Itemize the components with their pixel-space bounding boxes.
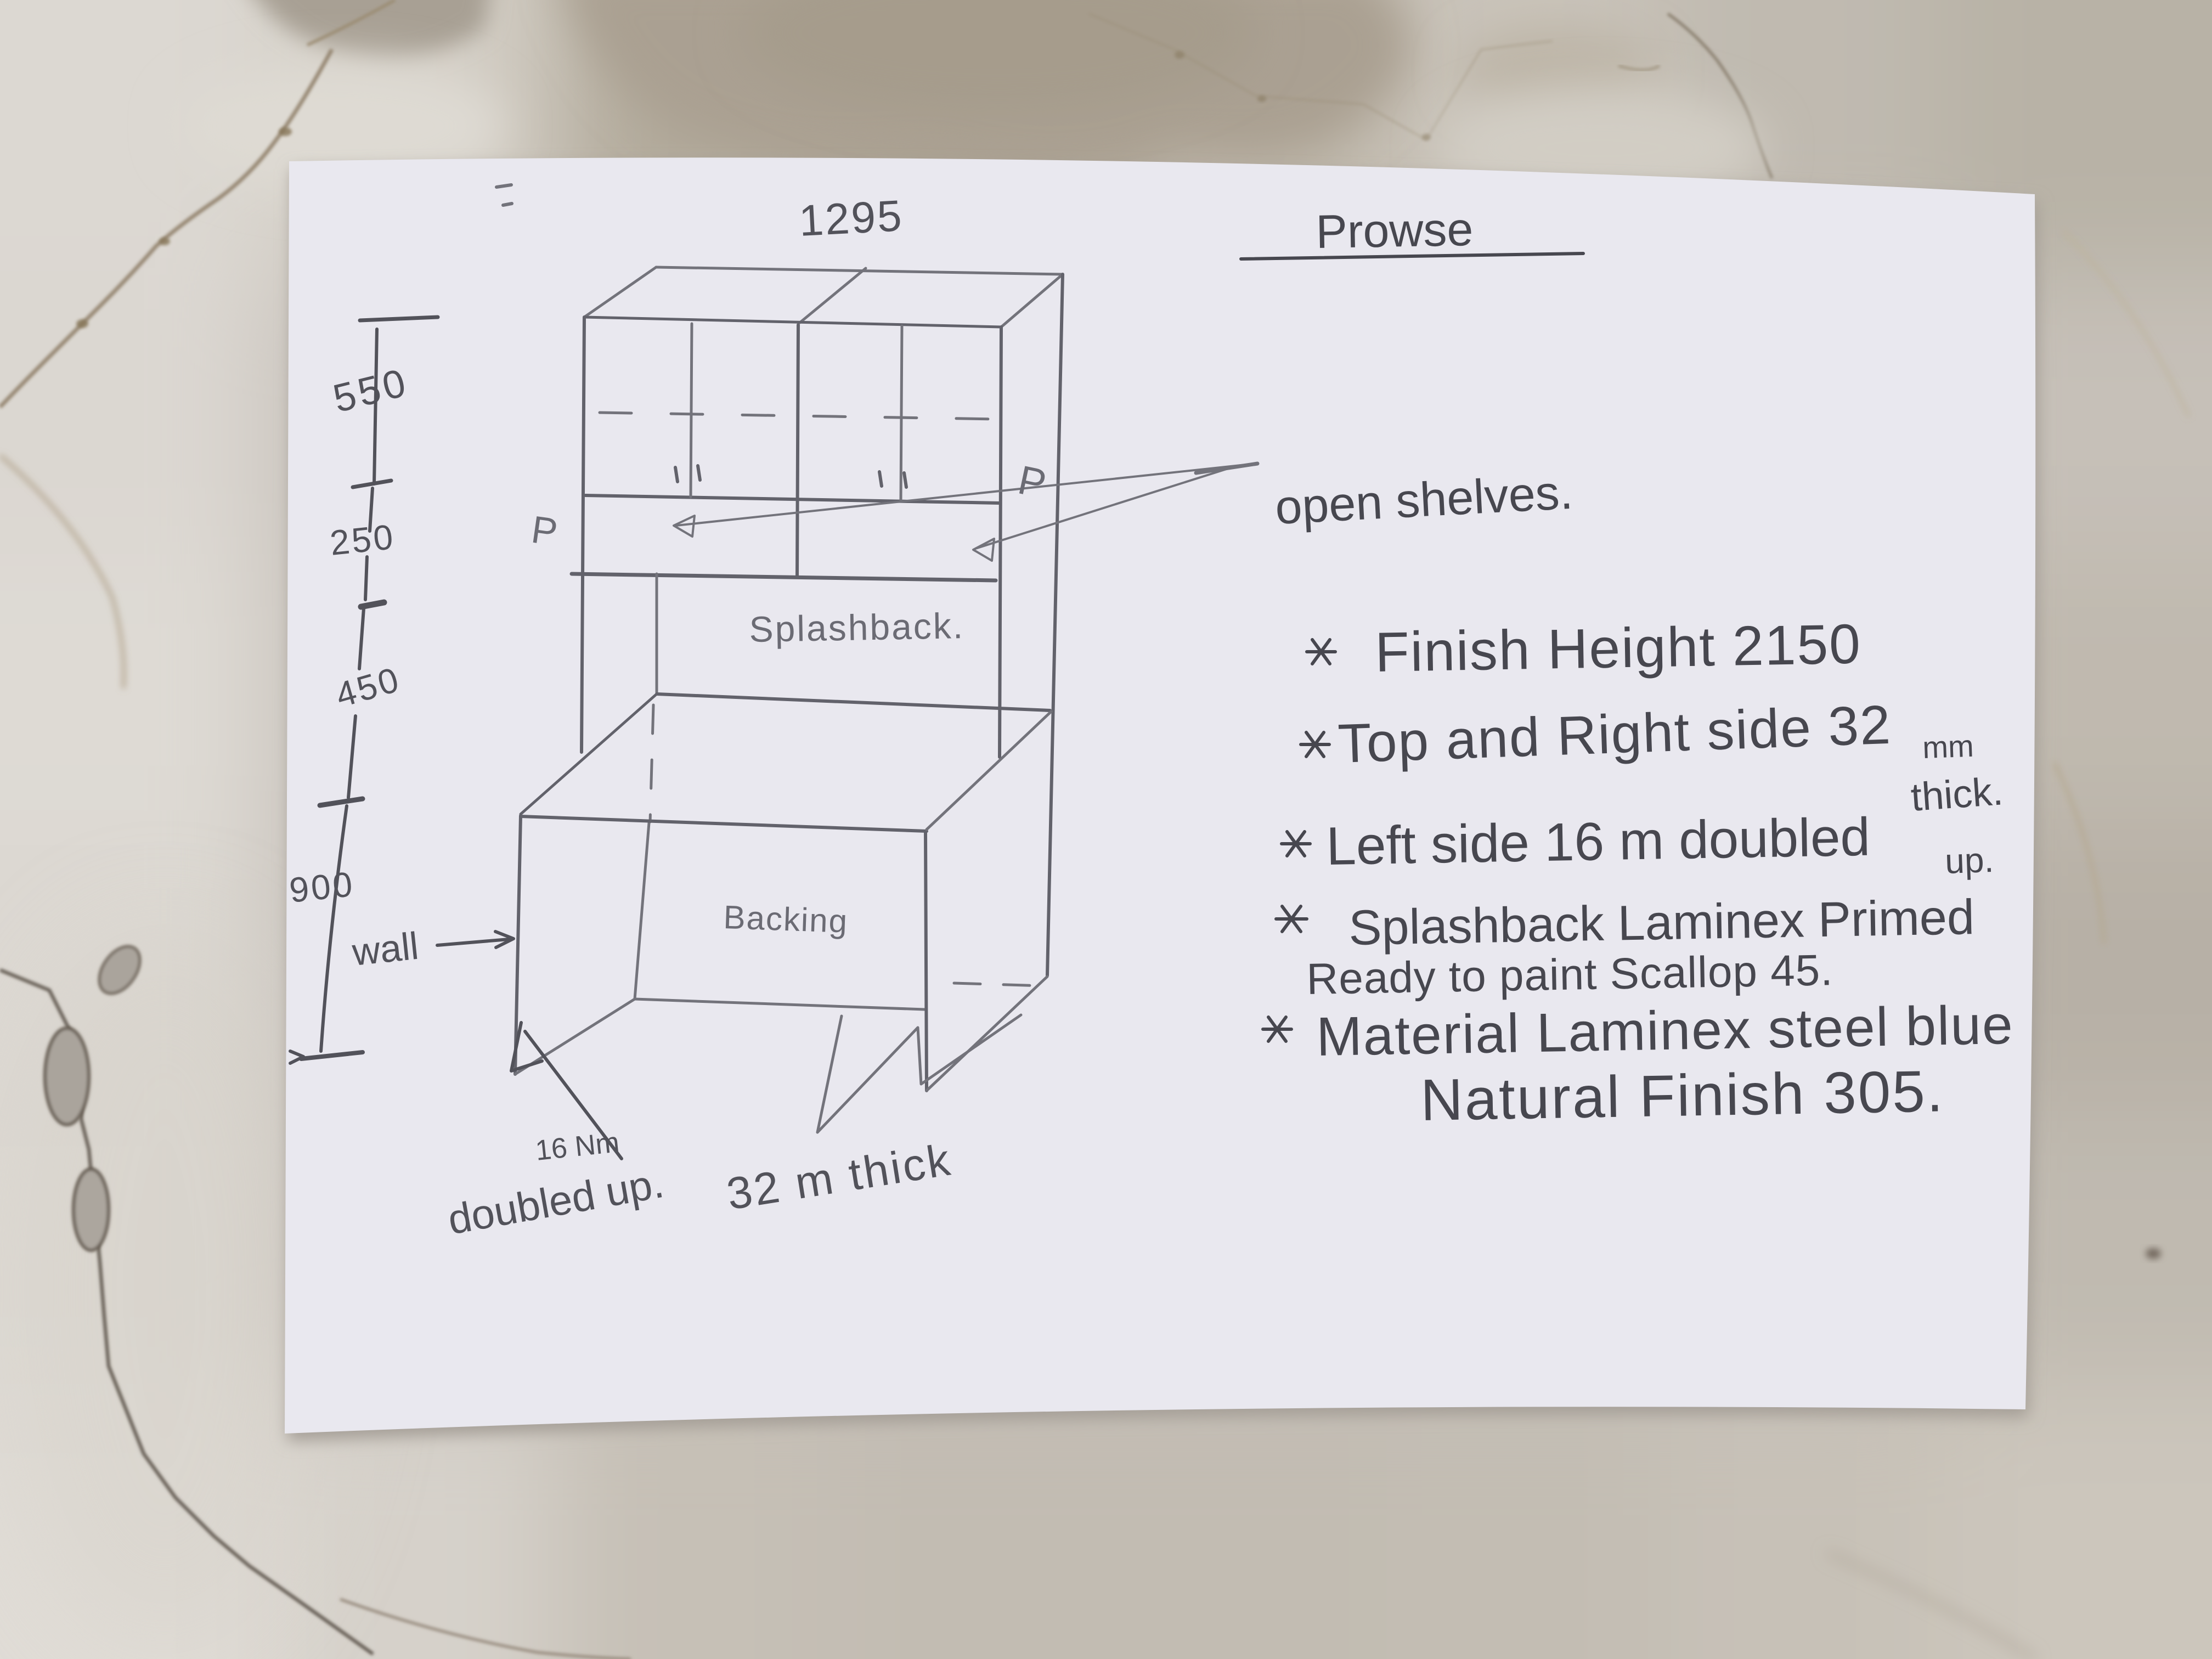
svg-text:Backing: Backing <box>723 899 849 940</box>
svg-text:1295: 1295 <box>798 191 904 245</box>
svg-text:wall: wall <box>349 924 420 974</box>
svg-text:Ready to paint Scallop 45.: Ready to paint Scallop 45. <box>1306 945 1833 1003</box>
svg-text:250: 250 <box>328 517 397 563</box>
svg-text:Splashback.: Splashback. <box>749 605 965 650</box>
svg-text:Left side 16 m doubled: Left side 16 m doubled <box>1325 806 1870 876</box>
svg-text:Finish Height 2150: Finish Height 2150 <box>1374 613 1861 684</box>
svg-text:up.: up. <box>1944 840 1994 881</box>
svg-text:Material Laminex steel blue: Material Laminex steel blue <box>1316 994 2014 1068</box>
svg-text:Splashback Laminex Primed: Splashback Laminex Primed <box>1348 890 1975 956</box>
svg-text:900: 900 <box>287 864 357 910</box>
svg-text:thick.: thick. <box>1910 769 2005 820</box>
svg-text:Prowse: Prowse <box>1316 203 1474 258</box>
svg-text:mm: mm <box>1922 729 1974 765</box>
svg-text:Natural Finish 305.: Natural Finish 305. <box>1420 1058 1945 1133</box>
